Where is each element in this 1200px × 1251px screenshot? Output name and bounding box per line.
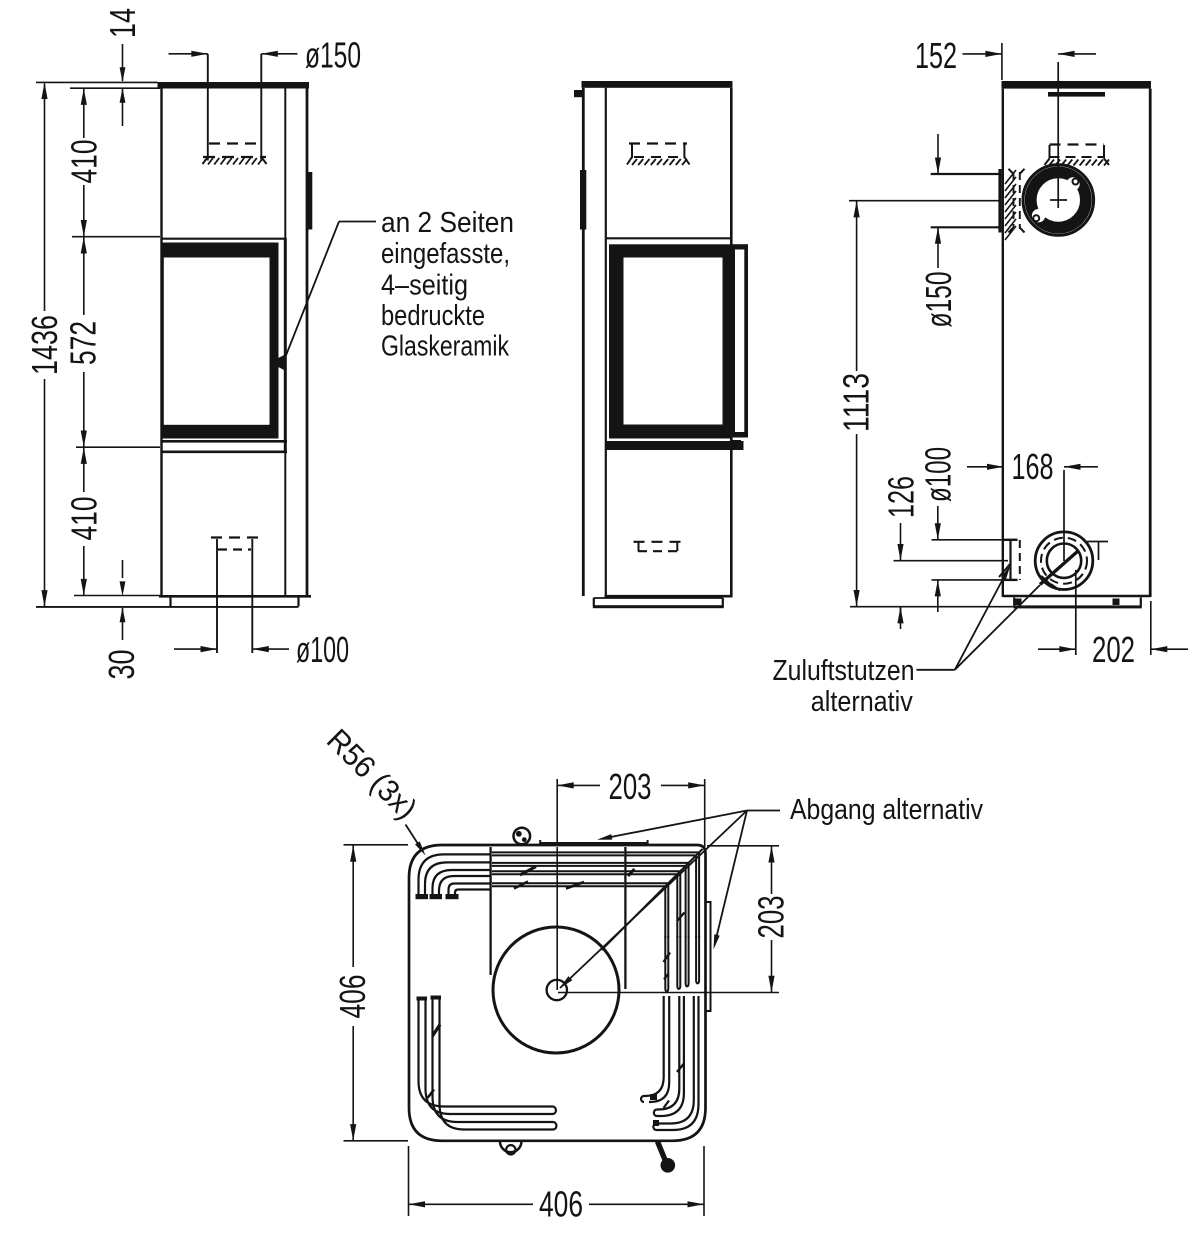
svg-text:ø150: ø150 <box>305 35 361 76</box>
svg-text:30: 30 <box>101 650 142 680</box>
svg-text:an 2 Seiten: an 2 Seiten <box>381 207 514 239</box>
svg-text:Zuluftstutzen: Zuluftstutzen <box>773 655 915 687</box>
svg-text:406: 406 <box>332 975 373 1019</box>
svg-text:1113: 1113 <box>836 373 877 432</box>
svg-text:410: 410 <box>64 140 105 184</box>
svg-text:152: 152 <box>915 35 957 76</box>
svg-text:ø150: ø150 <box>918 272 959 328</box>
svg-text:406: 406 <box>539 1183 583 1224</box>
svg-text:126: 126 <box>881 476 922 518</box>
svg-text:168: 168 <box>1012 446 1054 487</box>
svg-text:202: 202 <box>1092 629 1135 670</box>
svg-text:Abgang alternativ: Abgang alternativ <box>790 794 983 826</box>
svg-text:eingefasste,: eingefasste, <box>381 238 510 270</box>
svg-text:203: 203 <box>609 766 652 807</box>
svg-text:ø100: ø100 <box>917 447 958 502</box>
svg-text:alternativ: alternativ <box>811 686 913 718</box>
svg-text:14: 14 <box>102 8 143 38</box>
svg-text:ø100: ø100 <box>296 629 349 670</box>
svg-text:bedruckte: bedruckte <box>381 300 485 332</box>
svg-text:410: 410 <box>64 497 105 541</box>
svg-text:Glaskeramik: Glaskeramik <box>381 331 509 363</box>
svg-text:4–seitig: 4–seitig <box>381 270 468 302</box>
svg-text:572: 572 <box>63 321 104 365</box>
svg-text:203: 203 <box>751 896 792 939</box>
svg-text:1436: 1436 <box>24 315 65 375</box>
